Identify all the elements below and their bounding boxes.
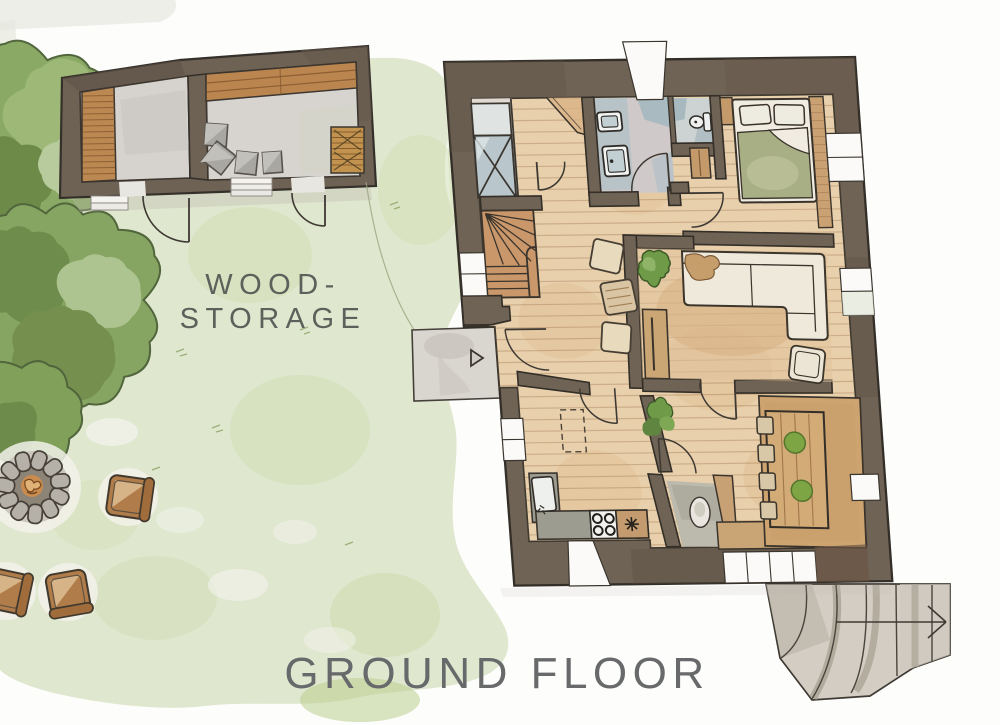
svg-text:STORAGE: STORAGE bbox=[180, 303, 367, 335]
svg-text:GROUND FLOOR: GROUND FLOOR bbox=[284, 649, 709, 698]
svg-text:WOOD-: WOOD- bbox=[205, 269, 341, 301]
